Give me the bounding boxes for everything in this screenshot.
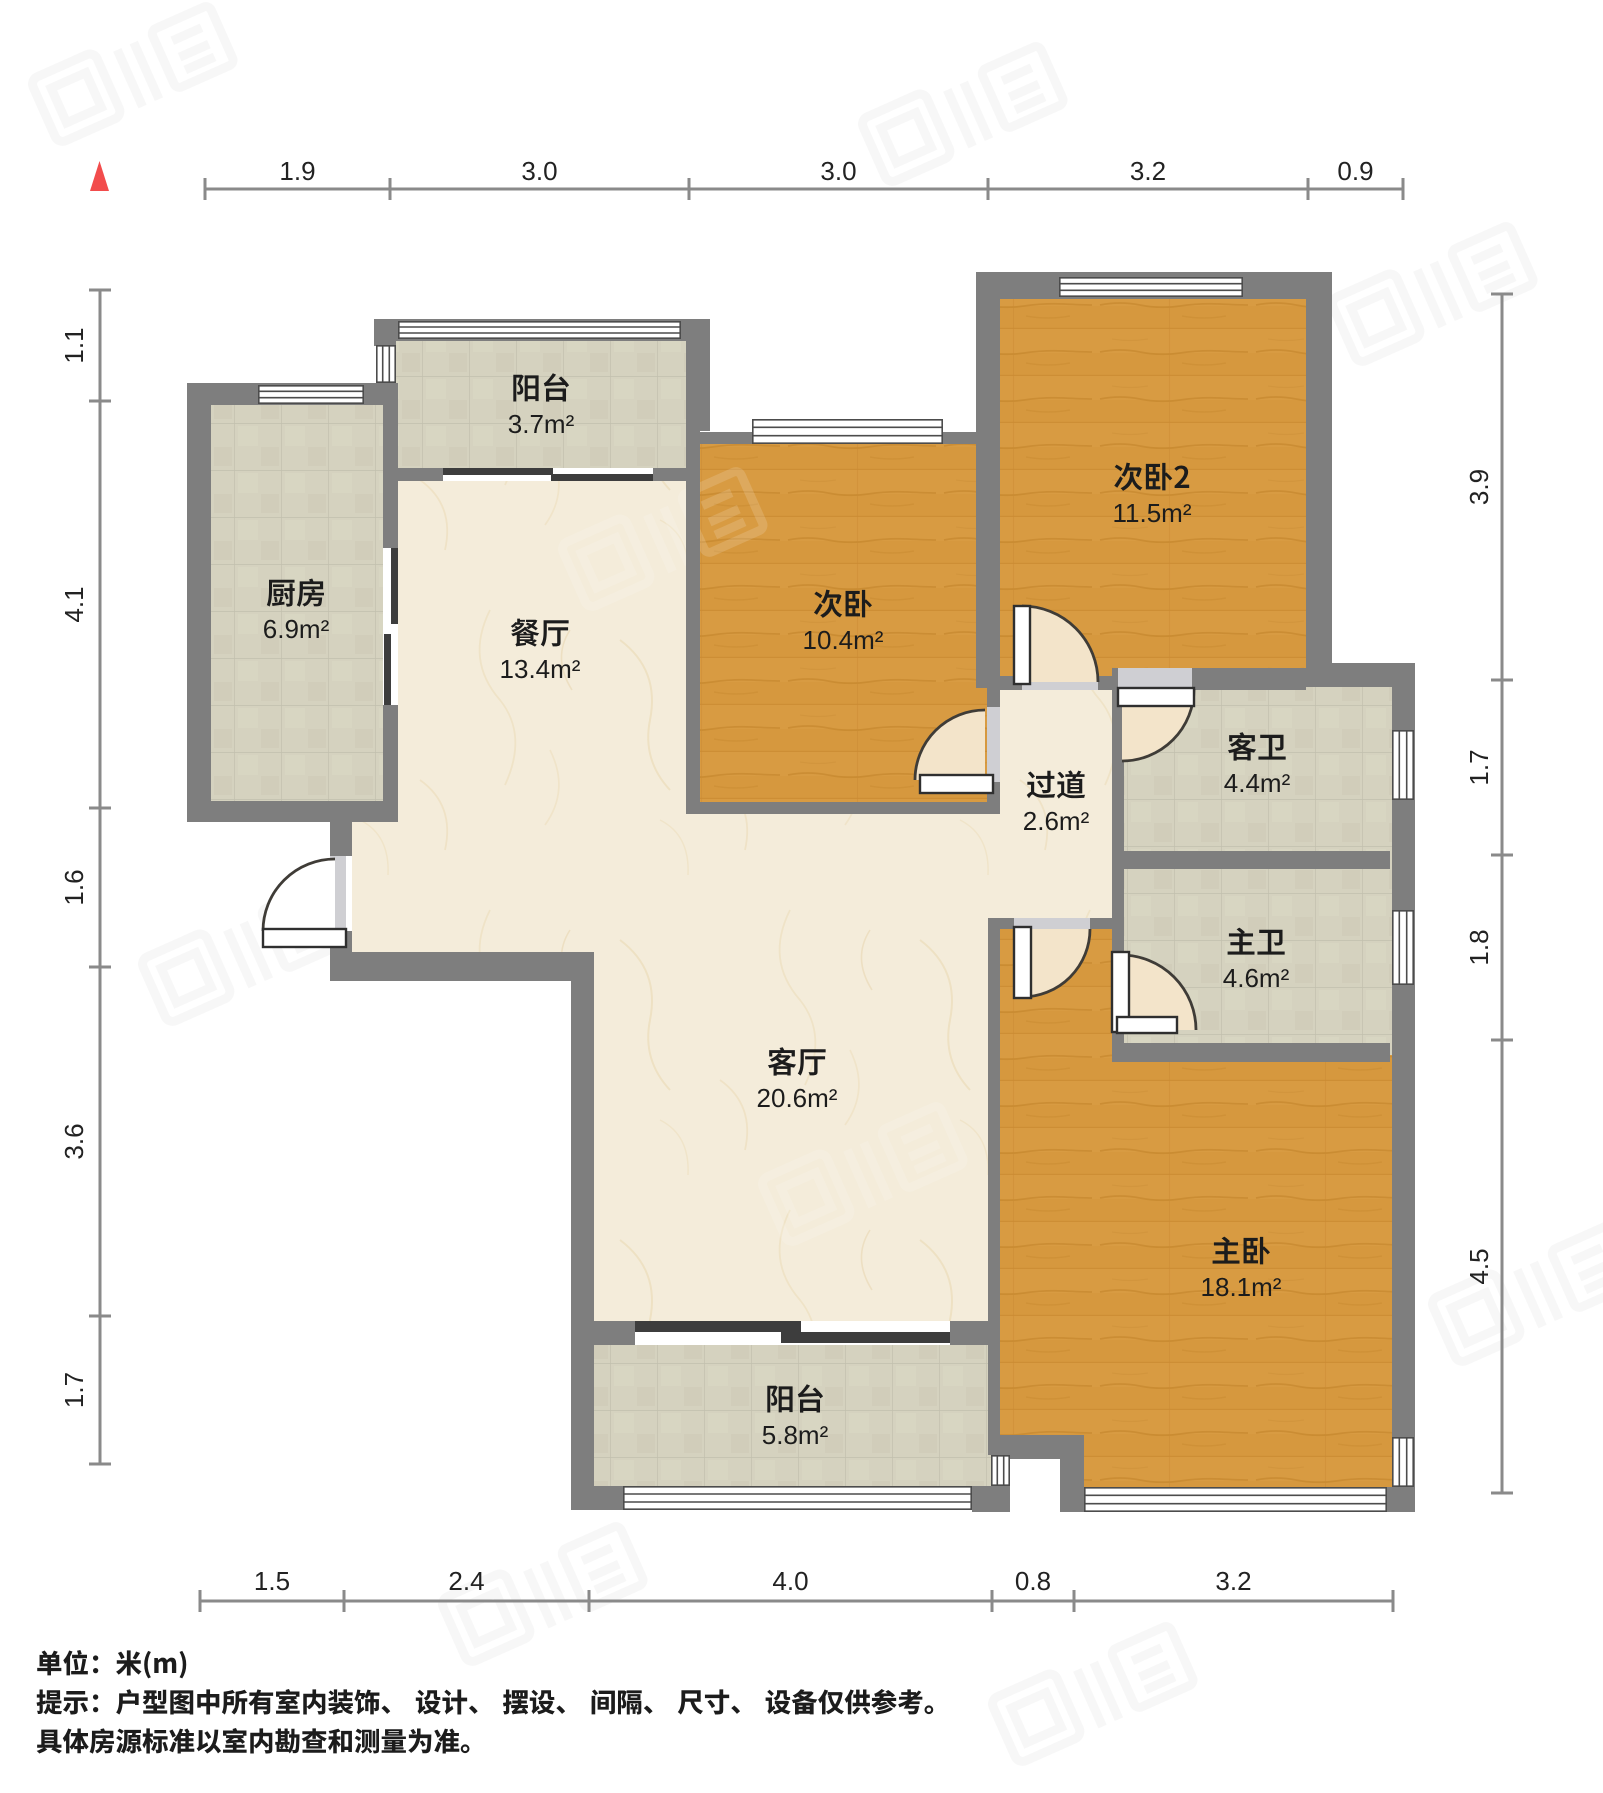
- svg-text:2.4: 2.4: [448, 1566, 484, 1596]
- svg-text:4.4m²: 4.4m²: [1224, 768, 1291, 798]
- svg-text:1.7: 1.7: [1464, 749, 1494, 785]
- svg-text:3.9: 3.9: [1464, 469, 1494, 505]
- svg-text:13.4m²: 13.4m²: [500, 654, 581, 684]
- svg-text:3.0: 3.0: [521, 156, 557, 186]
- svg-text:4.5: 4.5: [1464, 1248, 1494, 1284]
- svg-text:4.0: 4.0: [772, 1566, 808, 1596]
- svg-text:3.2: 3.2: [1130, 156, 1166, 186]
- svg-text:1.1: 1.1: [59, 327, 89, 363]
- svg-text:4.1: 4.1: [59, 586, 89, 622]
- svg-text:20.6m²: 20.6m²: [757, 1083, 838, 1113]
- svg-text:1.7: 1.7: [59, 1372, 89, 1408]
- svg-text:6.9m²: 6.9m²: [263, 614, 330, 644]
- svg-text:1.6: 1.6: [59, 869, 89, 905]
- svg-text:3.0: 3.0: [820, 156, 856, 186]
- svg-text:1.9: 1.9: [279, 156, 315, 186]
- svg-text:1.8: 1.8: [1464, 929, 1494, 965]
- svg-text:1.5: 1.5: [254, 1566, 290, 1596]
- svg-text:3.6: 3.6: [59, 1123, 89, 1159]
- svg-text:18.1m²: 18.1m²: [1201, 1272, 1282, 1302]
- svg-text:3.2: 3.2: [1215, 1566, 1251, 1596]
- svg-text:0.8: 0.8: [1015, 1566, 1051, 1596]
- svg-text:3.7m²: 3.7m²: [508, 409, 575, 439]
- svg-text:4.6m²: 4.6m²: [1223, 963, 1290, 993]
- svg-text:11.5m²: 11.5m²: [1113, 498, 1192, 528]
- svg-text:2.6m²: 2.6m²: [1023, 806, 1090, 836]
- svg-text:5.8m²: 5.8m²: [762, 1420, 829, 1450]
- svg-text:10.4m²: 10.4m²: [803, 625, 884, 655]
- svg-text:0.9: 0.9: [1337, 156, 1373, 186]
